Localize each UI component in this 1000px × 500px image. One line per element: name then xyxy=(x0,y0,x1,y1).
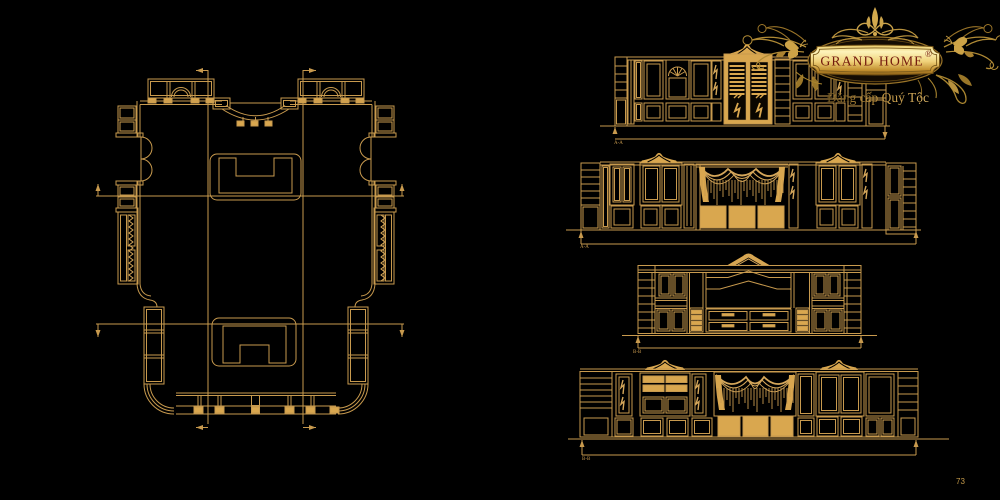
svg-text:Đẳng cấp Quý Tộc: Đẳng cấp Quý Tộc xyxy=(827,90,929,105)
svg-text:A-A: A-A xyxy=(614,141,623,146)
svg-text:®: ® xyxy=(925,49,932,59)
svg-text:B-B: B-B xyxy=(582,457,591,462)
svg-text:73: 73 xyxy=(956,477,965,486)
svg-text:B-B: B-B xyxy=(633,350,642,355)
svg-text:A-A: A-A xyxy=(580,245,589,250)
svg-text:GRAND HOME: GRAND HOME xyxy=(820,54,923,69)
